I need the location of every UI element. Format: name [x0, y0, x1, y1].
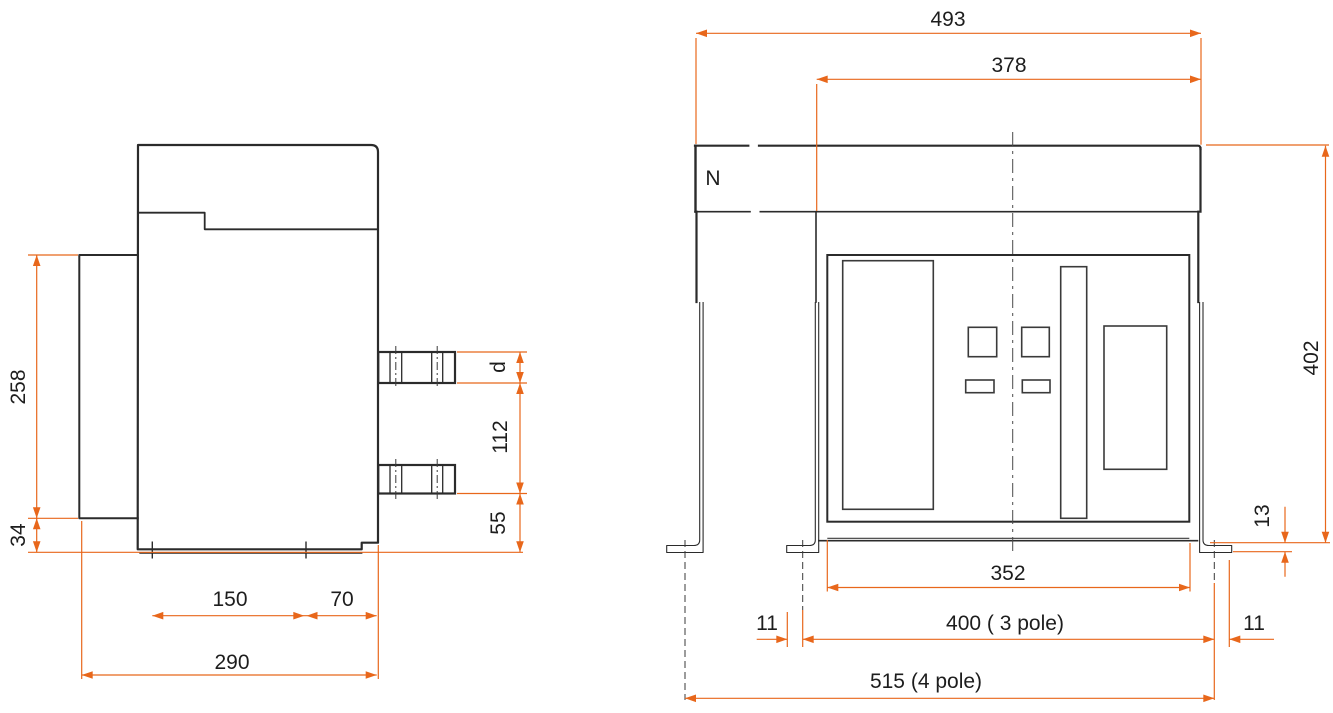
label-70: 70 [330, 588, 353, 611]
label-150: 150 [212, 588, 247, 611]
breaker-dimension-drawing: 258 34 150 70 290 d 112 55 [0, 0, 1333, 713]
label-neutral-pole: N [705, 167, 720, 190]
label-352: 352 [990, 562, 1025, 585]
label-112: 112 [489, 420, 512, 453]
label-402: 402 [1300, 340, 1323, 375]
label-290: 290 [214, 651, 249, 674]
label-515-4pole: 515 (4 pole) [870, 670, 982, 693]
label-13: 13 [1251, 504, 1274, 527]
label-11-right: 11 [1243, 612, 1265, 635]
label-400-3pole: 400 ( 3 pole) [946, 612, 1064, 635]
technical-drawing-page: 258 34 150 70 290 d 112 55 [0, 0, 1333, 713]
label-378: 378 [991, 54, 1026, 77]
drawing-background [0, 0, 1333, 713]
label-11-left: 11 [756, 612, 778, 635]
label-493: 493 [930, 8, 965, 31]
label-34: 34 [7, 523, 30, 547]
label-55: 55 [487, 511, 510, 534]
label-258: 258 [7, 369, 30, 404]
label-d: d [487, 361, 510, 373]
